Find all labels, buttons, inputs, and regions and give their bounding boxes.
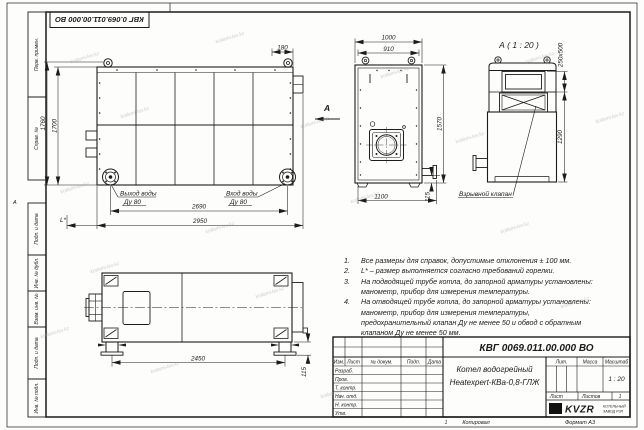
- support-legs: [98, 342, 299, 355]
- note-number: 4.: [344, 297, 361, 338]
- margin-stamp-podp-data-2: Подп. и дата: [34, 337, 40, 369]
- format-label: Формат А3: [565, 420, 596, 426]
- side-view-dimensions: [44, 49, 303, 230]
- top-view: 2450 115: [84, 273, 311, 377]
- note-number: 2.: [344, 266, 361, 276]
- col-docnum: № докум.: [370, 360, 392, 366]
- dim-1100: 1100: [374, 194, 388, 201]
- margin-stamp-vzam-inv: Взам. инв. №: [34, 293, 40, 325]
- document-code: КВГ 0069.011.00.000 ВО: [479, 343, 593, 354]
- zone-letter: А: [12, 200, 17, 206]
- water-outlet-label: Выход воды: [120, 190, 157, 198]
- view-arrow-a-label: А: [323, 103, 330, 113]
- margin-stamp-inv-podl: Инв. № подл.: [34, 382, 40, 413]
- drawing-sheet: kotlami-lev.kz kotlami-lev.kz kotlami-le…: [0, 0, 644, 430]
- mass-label: Масса: [583, 360, 598, 366]
- water-inlet-callout: Вход воды Ду 80: [224, 184, 285, 207]
- front-bolt-dots: [360, 70, 417, 176]
- margin-stamp-perv-primen: Перв. примен.: [34, 38, 40, 71]
- dim-2450: 2450: [190, 356, 206, 363]
- explosion-valve-panel: [500, 93, 548, 112]
- note-text: На отводящей трубе котла, до запорной ар…: [361, 297, 597, 338]
- col-izm: Изм.: [334, 360, 345, 366]
- dim-250x500: 250x500: [558, 42, 565, 68]
- col-podp: Подп.: [407, 360, 420, 366]
- note-number: 3.: [344, 277, 361, 298]
- note-text: На подводящей трубе котла, до запорной а…: [361, 277, 597, 298]
- dim-180: 180: [277, 45, 288, 52]
- margin-stamp-inv-dubl: Инв. № дубл.: [34, 258, 40, 289]
- water-outlet-callout: Выход воды Ду 80: [111, 185, 157, 207]
- row-razrab: Разраб.: [335, 369, 353, 375]
- note-number: 1.: [344, 256, 361, 266]
- margin-stamp-podp-data-1: Подп. и дата: [34, 213, 40, 245]
- side-view: Выход воды Ду 80 Вход воды Ду 80: [40, 45, 340, 230]
- copied-label: Копировал: [462, 420, 489, 426]
- dim-115-legs: 115: [301, 366, 308, 377]
- col-list: Лист: [346, 360, 360, 366]
- explosion-valve-label: Взрывной клапан: [459, 190, 512, 198]
- top-hatch: [123, 292, 150, 325]
- dim-910: 910: [383, 46, 394, 53]
- row-nachotd: Нач. отд.: [335, 394, 357, 400]
- company-logo-text: KVZR: [565, 405, 595, 416]
- row-tkontr: Т. контр.: [335, 386, 357, 392]
- detail-stub: [473, 156, 488, 171]
- note-4: 4. На отводящей трубе котла, до запорной…: [344, 297, 634, 338]
- title-block: КВГ 0069.011.00.000 ВО Изм. Лист № докум…: [333, 337, 630, 417]
- dim-1700: 1700: [52, 119, 59, 134]
- wheel-flanges: [103, 169, 296, 185]
- row-nkontr: Н. контр.: [335, 403, 358, 409]
- top-view-dimensions: [112, 333, 311, 367]
- lifting-lug-icon: [104, 59, 292, 67]
- company-logo: KVZR КОТЕЛЬНЫЙ ЗАВОД РЗЛ: [549, 403, 626, 416]
- note-text: L* – размер выполняется согласно требова…: [361, 266, 597, 276]
- detail-view-a: А ( 1 : 20 ): [473, 40, 568, 182]
- col-data: Дата: [427, 360, 441, 366]
- front-view: 1000 910 1570 1100 115 Взрывной клапан: [355, 35, 536, 205]
- product-name-line2: Heatexpert-КВа-0,8-ГЛЖ: [450, 378, 540, 387]
- note-1: 1. Все размеры для справок, допустимые о…: [344, 256, 634, 266]
- view-arrow-a: А: [315, 103, 340, 119]
- explosion-valve-callout: Взрывной клапан: [458, 106, 536, 198]
- zone-number-bottom: 1: [445, 420, 448, 426]
- dim-1570: 1570: [437, 117, 444, 132]
- water-inlet-dn: Ду 80: [229, 199, 247, 206]
- detail-view-dimensions: [547, 72, 568, 183]
- water-inlet-label: Вход воды: [226, 190, 258, 198]
- water-outlet-dn: Ду 80: [123, 199, 141, 206]
- row-prov: Пров.: [335, 377, 348, 383]
- detail-view-title: А ( 1 : 20 ): [498, 40, 539, 50]
- drain-stub: [422, 166, 437, 179]
- dim-1000: 1000: [381, 35, 396, 42]
- note-3: 3. На подводящей трубе котла, до запорно…: [344, 277, 634, 298]
- dim-115-stub: 115: [425, 191, 432, 202]
- dim-1290: 1290: [557, 130, 564, 145]
- dim-l-star: L*: [60, 217, 67, 224]
- drawing-canvas: КВГ 0.069.011.00.000 ВО Перв. примен. Сп…: [0, 0, 644, 430]
- front-view-dimensions: [355, 39, 447, 205]
- sheets-value: 1: [619, 394, 622, 400]
- bolt-dots: [99, 69, 291, 170]
- lit-label: Лит.: [555, 360, 568, 366]
- sheets-label: Листов: [581, 394, 601, 400]
- dim-2690: 2690: [191, 204, 207, 211]
- company-name-line2: ЗАВОД РЗЛ: [603, 410, 624, 414]
- scale-value: 1 : 20: [608, 376, 625, 383]
- front-lug-icon: [362, 57, 415, 64]
- detail-lug-icon: [495, 57, 550, 63]
- sheet-label: Лист: [549, 394, 563, 400]
- row-utv: Утв.: [335, 411, 346, 417]
- dim-1760: 1760: [40, 116, 47, 131]
- note-text: Все размеры для справок, допустимые откл…: [361, 256, 597, 266]
- product-name-line1: Котел водогрейный: [456, 365, 533, 374]
- note-2: 2. L* – размер выполняется согласно треб…: [344, 266, 634, 276]
- technical-notes: 1. Все размеры для справок, допустимые о…: [344, 256, 634, 339]
- scale-label: Масштаб: [605, 360, 629, 366]
- company-name-line1: КОТЕЛЬНЫЙ: [603, 405, 626, 409]
- dim-2950: 2950: [192, 218, 208, 225]
- top-code-stamp: КВГ 0.069.011.00.000 ВО: [55, 15, 144, 24]
- corner-lug-plates: [104, 276, 288, 339]
- burner-flange: [366, 127, 407, 163]
